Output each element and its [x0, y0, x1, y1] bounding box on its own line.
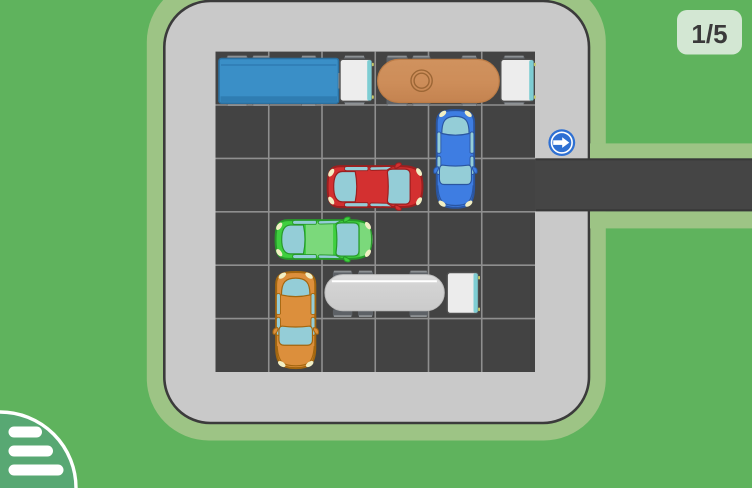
svg-text:1/5: 1/5 — [691, 19, 727, 49]
